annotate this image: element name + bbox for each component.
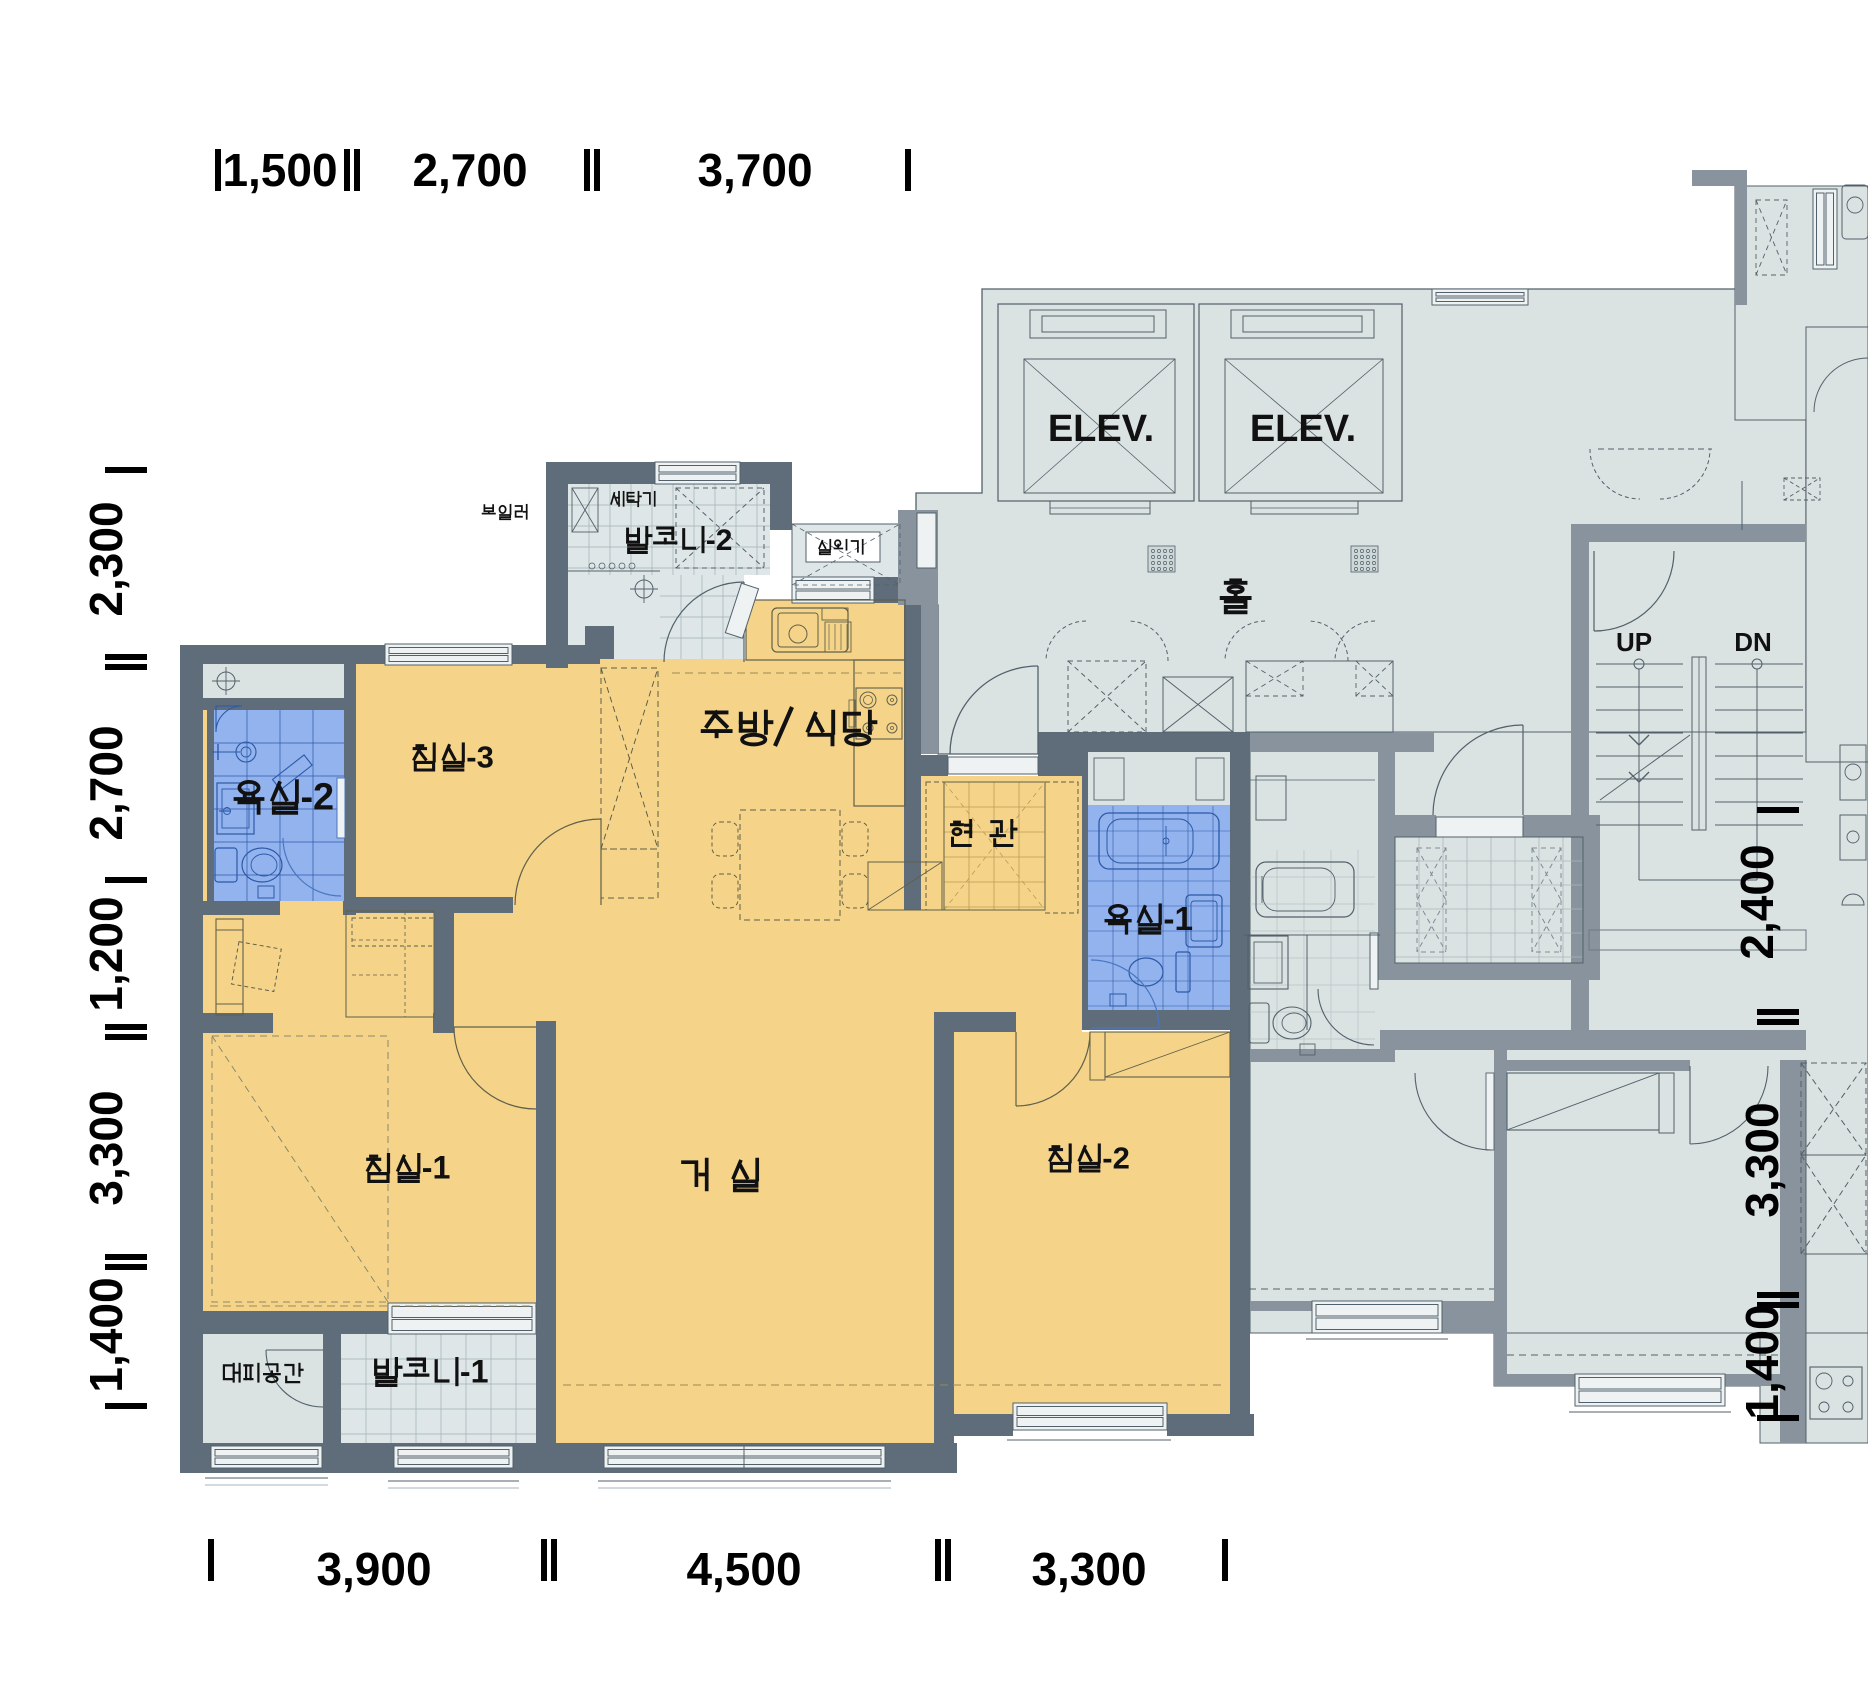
svg-text:-3: -3 <box>466 739 494 774</box>
svg-text:3,900: 3,900 <box>316 1543 431 1595</box>
svg-text:2,400: 2,400 <box>1731 844 1783 959</box>
svg-text:1,400: 1,400 <box>1736 1304 1788 1419</box>
svg-text:-1: -1 <box>460 1354 489 1390</box>
svg-text:-1: -1 <box>422 1150 451 1186</box>
svg-text:4,500: 4,500 <box>686 1543 801 1595</box>
svg-text:ELEV.: ELEV. <box>1250 408 1356 450</box>
svg-text:3,300: 3,300 <box>80 1090 132 1205</box>
svg-text:2,700: 2,700 <box>80 725 132 840</box>
svg-text:3,700: 3,700 <box>697 144 812 196</box>
svg-text:-2: -2 <box>1102 1140 1130 1175</box>
svg-text:ELEV.: ELEV. <box>1048 408 1154 450</box>
svg-text:1,200: 1,200 <box>80 896 132 1011</box>
svg-text:-1: -1 <box>1163 901 1193 938</box>
svg-text:2,700: 2,700 <box>412 144 527 196</box>
svg-text:-2: -2 <box>300 777 334 819</box>
svg-text:3,300: 3,300 <box>1736 1102 1788 1217</box>
svg-text:1,400: 1,400 <box>80 1277 132 1392</box>
svg-text:UP: UP <box>1616 627 1652 657</box>
svg-text:2,300: 2,300 <box>80 501 132 616</box>
svg-text:-2: -2 <box>706 524 733 557</box>
svg-text:1,500: 1,500 <box>222 144 337 196</box>
svg-text:3,300: 3,300 <box>1031 1543 1146 1595</box>
svg-text:DN: DN <box>1734 627 1772 657</box>
